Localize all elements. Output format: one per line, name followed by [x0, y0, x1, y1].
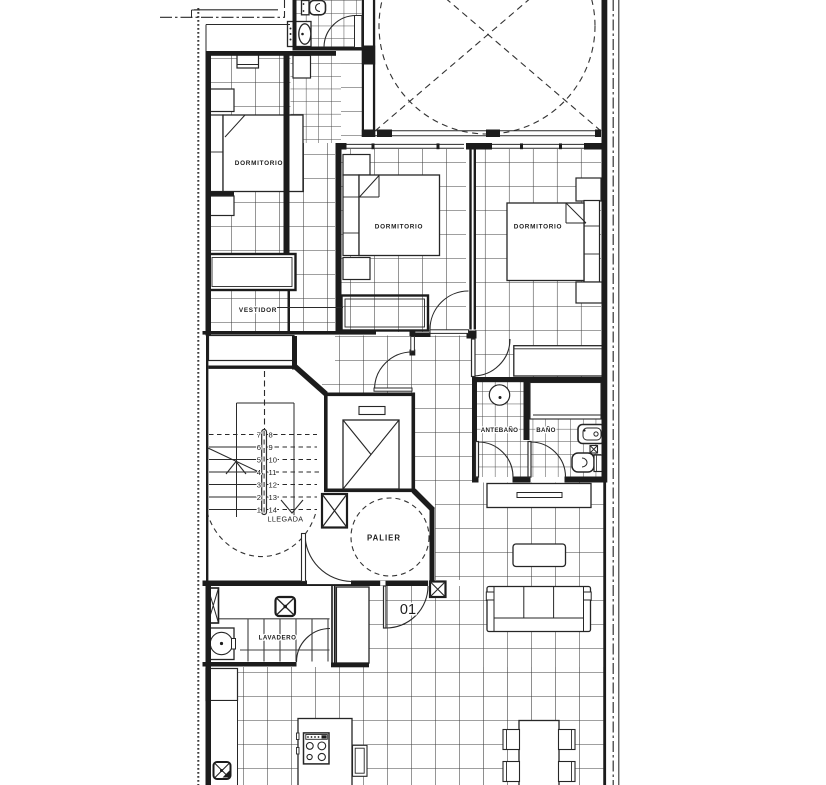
- svg-text:BAÑO: BAÑO: [536, 427, 555, 434]
- svg-text:LAVADERO: LAVADERO: [259, 635, 297, 642]
- svg-text:LLEGADA: LLEGADA: [268, 515, 304, 524]
- svg-text:01: 01: [400, 602, 416, 618]
- svg-text:ANTEBAÑO: ANTEBAÑO: [481, 427, 518, 434]
- svg-text:9: 9: [269, 443, 273, 452]
- svg-text:5: 5: [257, 456, 261, 465]
- svg-text:VESTIDOR: VESTIDOR: [239, 307, 277, 314]
- svg-text:DORMITORIO: DORMITORIO: [375, 224, 423, 231]
- svg-text:14: 14: [269, 506, 277, 515]
- svg-text:12: 12: [269, 481, 277, 490]
- svg-text:2: 2: [257, 493, 261, 502]
- svg-text:13: 13: [269, 493, 277, 502]
- svg-text:PALIER: PALIER: [367, 534, 401, 543]
- svg-text:DORMITORIO: DORMITORIO: [235, 160, 283, 167]
- svg-text:4: 4: [257, 468, 261, 477]
- svg-text:8: 8: [269, 431, 273, 440]
- svg-text:3: 3: [257, 481, 261, 490]
- svg-text:DORMITORIO: DORMITORIO: [514, 224, 562, 231]
- svg-text:11: 11: [269, 468, 277, 477]
- svg-text:7: 7: [257, 431, 261, 440]
- svg-text:6: 6: [257, 443, 261, 452]
- svg-text:10: 10: [269, 456, 277, 465]
- svg-text:1: 1: [257, 506, 261, 515]
